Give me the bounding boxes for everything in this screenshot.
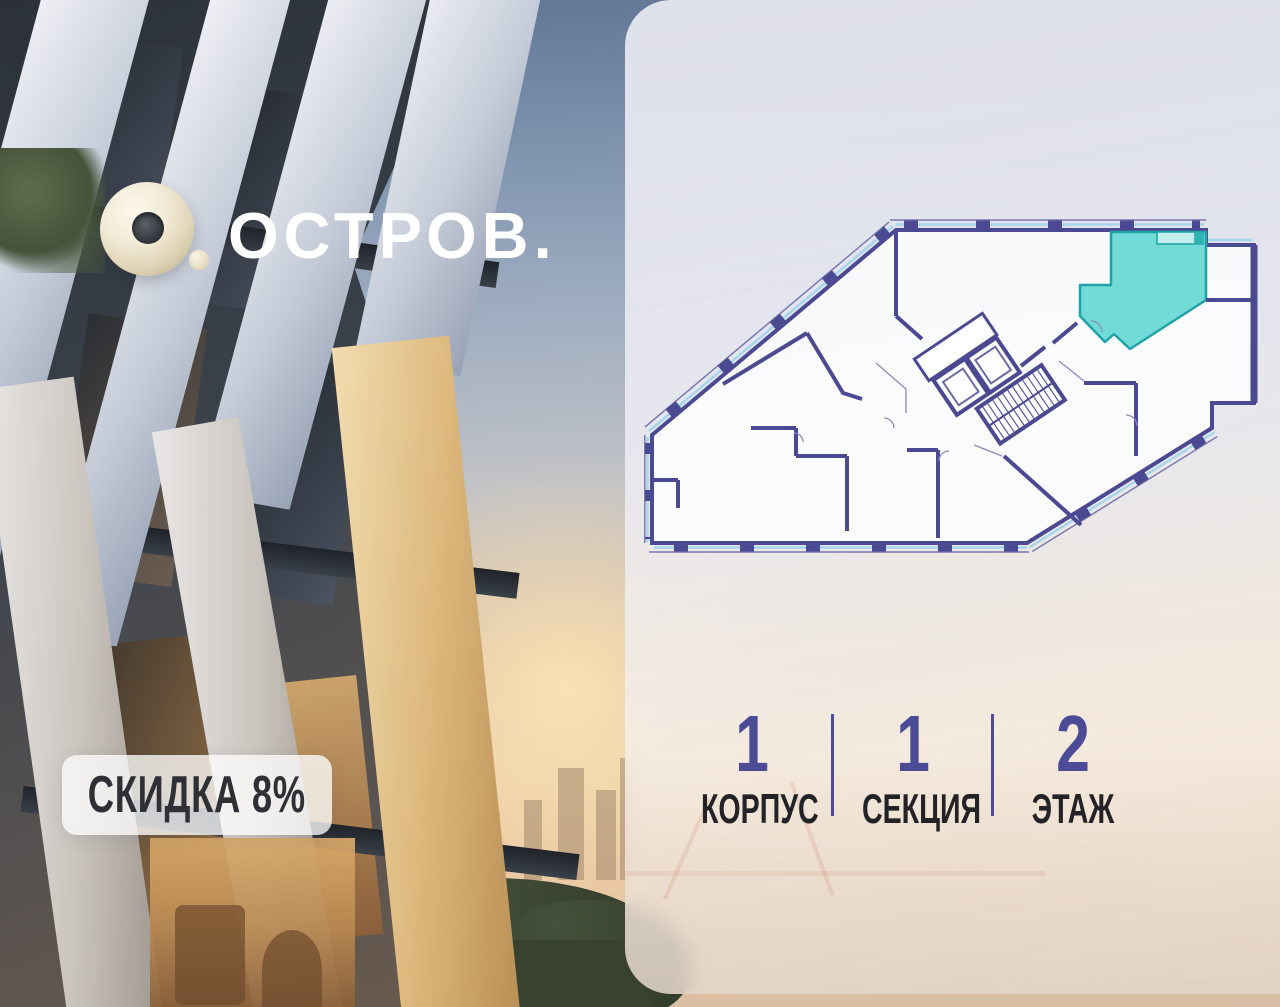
section-label: СЕКЦИЯ (862, 788, 964, 830)
torus-dot-icon (189, 250, 209, 270)
brand-logo-text: ОСТРОВ. (228, 203, 557, 268)
floorplan (643, 213, 1265, 565)
bridge-deck (625, 871, 1045, 876)
discount-label: СКИДКА 8% (88, 765, 306, 825)
floor-label: ЭТАЖ (1022, 788, 1124, 830)
building-label: КОРПУС (701, 788, 803, 830)
section-number: 1 (856, 706, 970, 782)
divider (831, 714, 834, 816)
discount-badge: СКИДКА 8% (62, 755, 332, 835)
apartment-balcony (1157, 232, 1195, 244)
floorplan-svg (643, 213, 1265, 565)
info-row: 1 КОРПУС 1 СЕКЦИЯ 2 ЭТАЖ (677, 706, 1148, 830)
info-building: 1 КОРПУС (677, 706, 827, 830)
apartment-balcony-pier (1195, 232, 1204, 245)
info-card: 1 КОРПУС 1 СЕКЦИЯ 2 ЭТАЖ (625, 0, 1280, 994)
torus-icon (100, 182, 194, 276)
skyline-tower (596, 790, 616, 880)
ad-banner: ОСТРОВ. СКИДКА 8% (0, 0, 1280, 1007)
info-section: 1 СЕКЦИЯ (838, 706, 988, 830)
info-floor: 2 ЭТАЖ (998, 706, 1148, 830)
divider (991, 714, 994, 816)
torus-hole (132, 212, 164, 244)
floor-number: 2 (1016, 706, 1130, 782)
furniture (175, 905, 245, 1005)
building-number: 1 (695, 706, 809, 782)
furniture (262, 930, 322, 1007)
balcony-plants (0, 148, 105, 273)
